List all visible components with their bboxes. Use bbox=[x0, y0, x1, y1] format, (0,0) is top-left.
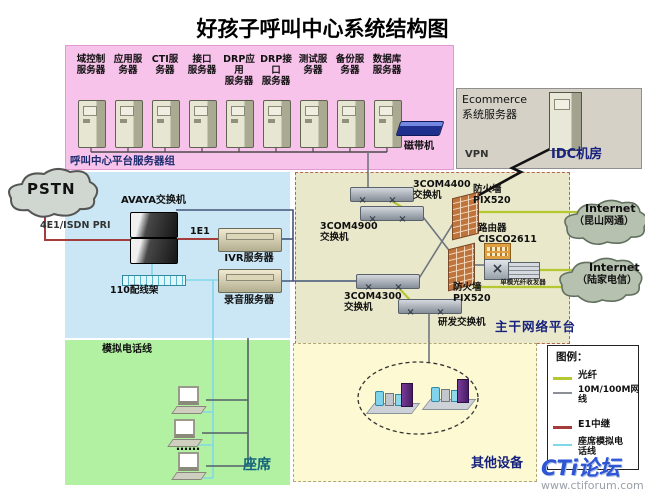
server-tower-icon bbox=[78, 100, 106, 148]
equipment-cluster-icon bbox=[424, 374, 472, 410]
server-group-label: 呼叫中心平台服务器组 bbox=[70, 155, 175, 167]
server-label-interface: 接口 服务器 bbox=[182, 55, 222, 77]
server-label-drp-app: DRP应用 服务器 bbox=[219, 55, 259, 88]
page-title: 好孩子呼叫中心系统结构图 bbox=[0, 13, 645, 43]
server-tower-icon bbox=[263, 100, 291, 148]
recording-server-label: 录音服务器 bbox=[214, 295, 284, 307]
cluster-device bbox=[457, 379, 469, 403]
tape-drive-label: 磁带机 bbox=[392, 141, 446, 153]
server-label-db: 数据库 服务器 bbox=[367, 55, 407, 77]
server-label-domain: 域控制 服务器 bbox=[71, 55, 111, 77]
ecommerce-server-icon bbox=[549, 92, 582, 151]
recording-server-icon bbox=[218, 269, 282, 293]
diagram-canvas: 好孩子呼叫中心系统结构图 bbox=[0, 0, 645, 496]
cluster-device bbox=[431, 387, 440, 402]
idc-room-label: IDC机房 bbox=[551, 148, 602, 163]
agent-pc-icon bbox=[172, 452, 206, 480]
cluster-device bbox=[385, 393, 394, 406]
switch-3com4900-label: 3COM4900 交换机 bbox=[320, 222, 378, 244]
pstn-label: PSTN bbox=[27, 181, 76, 198]
ivr-server-icon bbox=[218, 228, 282, 252]
internet-north-provider: （昆山网通） bbox=[574, 216, 634, 228]
legend-fiber-swatch bbox=[553, 377, 572, 380]
agent-pc-icon bbox=[172, 386, 206, 414]
ecommerce-server-label: Ecommerce 系统服务器 bbox=[462, 93, 552, 123]
cti-forum-logo: CTi论坛 bbox=[541, 452, 620, 482]
backbone-label: 主干网络平台 bbox=[495, 320, 576, 334]
legend-analog-swatch bbox=[553, 444, 572, 446]
internet-south-provider: （陆家电信） bbox=[577, 275, 637, 287]
switch-3com4900-icon bbox=[360, 206, 424, 221]
legend-title: 图例： bbox=[556, 351, 588, 363]
server-tower-icon bbox=[152, 100, 180, 148]
vpn-label: VPN bbox=[465, 149, 488, 161]
server-label-app: 应用服 务器 bbox=[108, 55, 148, 77]
fiber-transceiver-icon bbox=[508, 262, 540, 279]
avaya-pbx-icon bbox=[130, 238, 178, 264]
switch-3com4400-icon bbox=[350, 187, 414, 202]
avaya-label: AVAYA交换机 bbox=[121, 195, 186, 207]
legend-network-swatch bbox=[553, 392, 572, 394]
ivr-server-label: IVR服务器 bbox=[218, 253, 280, 265]
server-tower-icon bbox=[189, 100, 217, 148]
legend-e1-swatch bbox=[553, 426, 572, 429]
server-tower-icon bbox=[115, 100, 143, 148]
equipment-cluster-icon bbox=[368, 378, 416, 414]
cti-forum-url: www.ctiforum.com bbox=[541, 479, 644, 492]
cluster-device bbox=[441, 389, 450, 402]
legend-e1-label: E1中继 bbox=[578, 420, 610, 431]
server-label-test: 测试服 务器 bbox=[293, 55, 333, 77]
patch-panel-label: 110配线架 bbox=[110, 286, 158, 297]
switch-3com4400-label: 3COM4400 交换机 bbox=[413, 180, 471, 202]
agents-label: 座席 bbox=[243, 457, 271, 473]
pstn-trunk-label: 4E1/ISDN PRI bbox=[40, 221, 111, 232]
switch-3com4300-label: 3COM4300 交换机 bbox=[344, 292, 402, 314]
firewall-top-label: 防火墙 PIX520 bbox=[473, 185, 511, 207]
internet-north-label: Internet bbox=[585, 203, 636, 216]
server-tower-icon bbox=[226, 100, 254, 148]
tape-drive-icon bbox=[396, 121, 445, 136]
more-agents-dots: …… bbox=[176, 440, 200, 454]
analog-line-label: 模拟电话线 bbox=[102, 344, 152, 356]
server-label-backup: 备份服 务器 bbox=[330, 55, 370, 77]
avaya-pbx-icon bbox=[130, 212, 178, 238]
legend-network-label: 10M/100M网 线 bbox=[578, 385, 640, 406]
fiber-transceiver-label: 单模光纤收发器 bbox=[494, 279, 552, 286]
others-label: 其他设备 bbox=[471, 457, 523, 472]
server-label-drp-if: DRP接口 服务器 bbox=[256, 55, 296, 88]
firewall-bottom-label: 防火墙 PIX520 bbox=[453, 283, 491, 305]
rd-switch-label: 研发交换机 bbox=[438, 318, 486, 329]
internet-south-label: Internet bbox=[589, 262, 640, 275]
router-label: 路由器 CISCO2611 bbox=[478, 224, 537, 246]
e1-label: 1E1 bbox=[190, 227, 210, 238]
server-tower-icon bbox=[337, 100, 365, 148]
cluster-device bbox=[401, 383, 413, 407]
cluster-device bbox=[375, 391, 384, 406]
legend-fiber-label: 光纤 bbox=[578, 371, 597, 382]
router-switch-icon bbox=[484, 259, 511, 280]
server-label-cti: CTI服 务器 bbox=[145, 55, 185, 77]
server-tower-icon bbox=[300, 100, 328, 148]
switch-3com4300-icon bbox=[356, 274, 420, 289]
